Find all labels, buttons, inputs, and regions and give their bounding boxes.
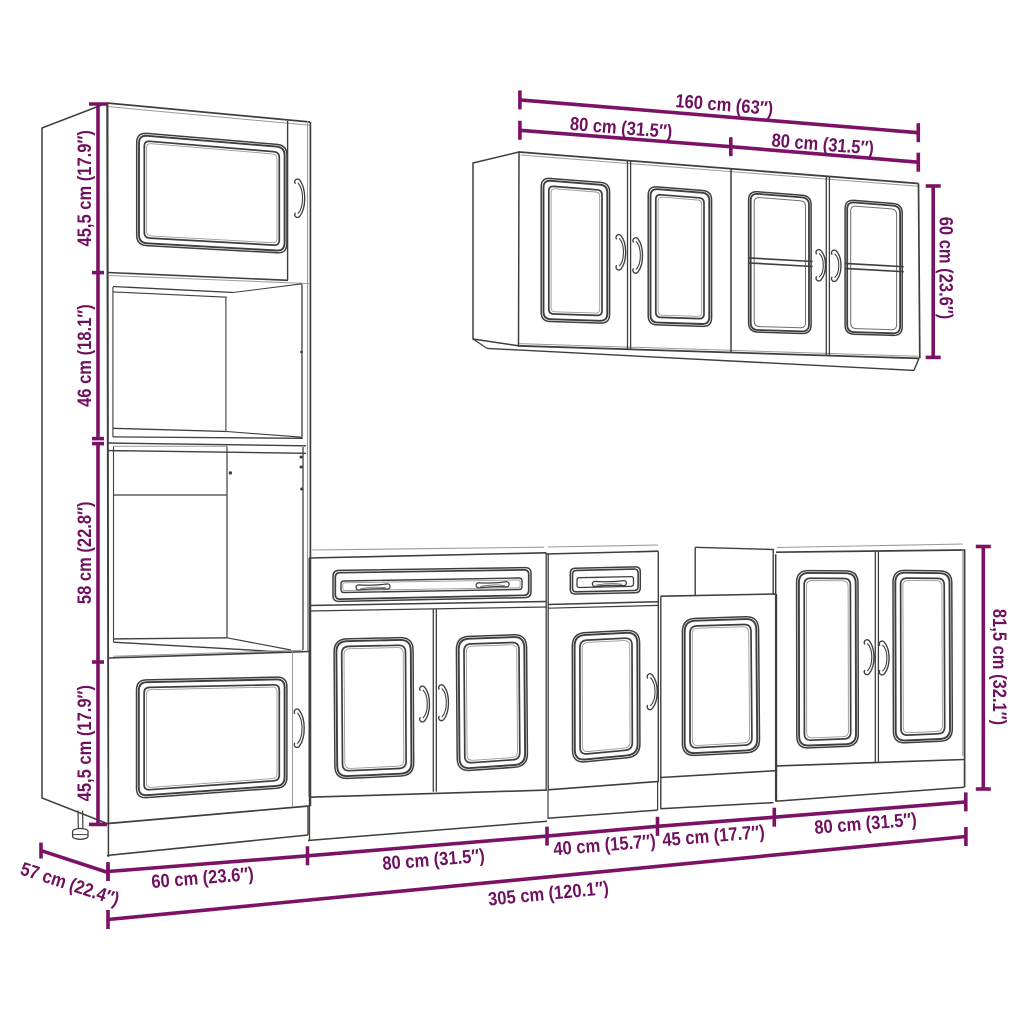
- svg-text:45,5 cm (17.9″): 45,5 cm (17.9″): [75, 130, 96, 246]
- svg-text:45,5 cm (17.9″): 45,5 cm (17.9″): [75, 685, 96, 801]
- svg-text:46 cm (18.1″): 46 cm (18.1″): [75, 304, 96, 407]
- svg-text:60 cm (23.6″): 60 cm (23.6″): [935, 217, 956, 320]
- svg-text:81,5 cm (32.1″): 81,5 cm (32.1″): [988, 609, 1009, 725]
- svg-text:58 cm (22.8″): 58 cm (22.8″): [75, 502, 96, 605]
